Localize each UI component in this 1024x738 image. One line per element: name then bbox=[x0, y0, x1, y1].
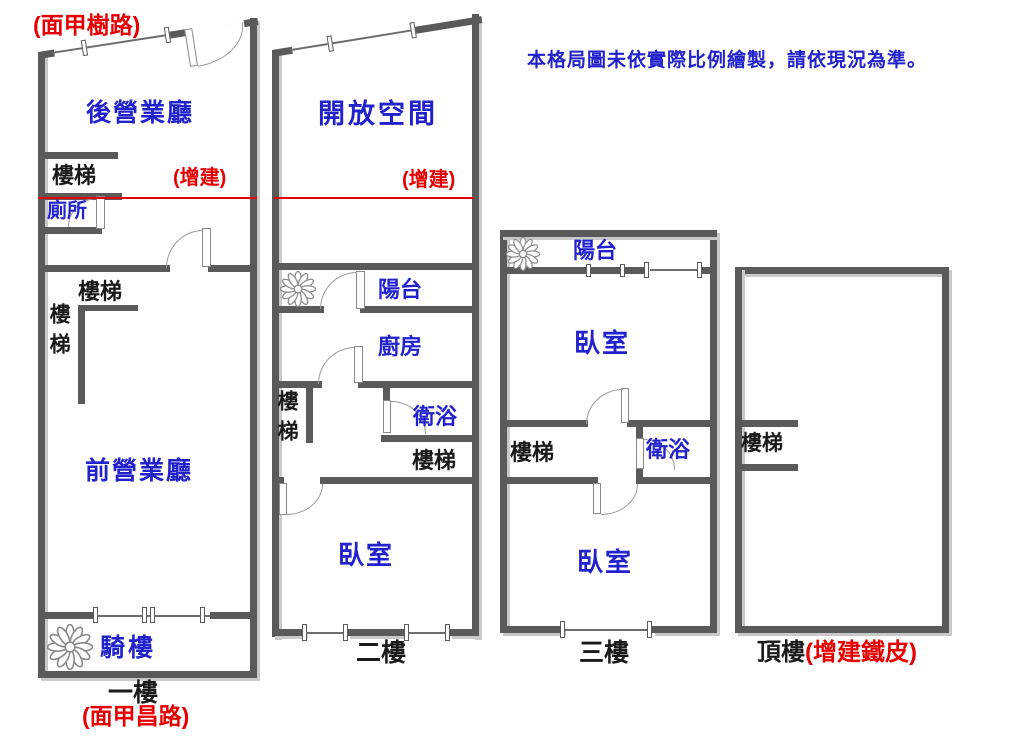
window-line bbox=[290, 29, 415, 51]
wall bbox=[500, 477, 598, 484]
wall bbox=[449, 629, 479, 636]
plant-icon bbox=[506, 237, 540, 271]
wall bbox=[627, 420, 717, 427]
door-leaf bbox=[593, 483, 601, 514]
wall bbox=[250, 18, 257, 678]
window-tick bbox=[326, 35, 333, 52]
wall bbox=[735, 267, 949, 274]
room-label-bedroom-lower-3f: 臥室 bbox=[577, 548, 633, 578]
wall bbox=[38, 227, 102, 234]
addition-line bbox=[274, 197, 474, 199]
wall bbox=[942, 267, 949, 633]
room-label-stair-3f: 樓梯 bbox=[510, 440, 554, 465]
wall bbox=[38, 152, 118, 159]
door-arc bbox=[286, 484, 323, 515]
wall bbox=[360, 306, 479, 313]
wall bbox=[210, 612, 257, 619]
wall bbox=[78, 305, 85, 404]
floor-label-roof: 頂樓(增建鐵皮) bbox=[757, 639, 917, 667]
room-label-bath-3f: 衛浴 bbox=[646, 437, 690, 462]
window-line bbox=[650, 269, 698, 271]
room-label-stair-side-1f: 樓梯 bbox=[46, 303, 70, 363]
room-label-stair-roof: 樓梯 bbox=[741, 432, 783, 456]
door-leaf bbox=[636, 438, 644, 469]
window-tick bbox=[200, 607, 205, 623]
wall bbox=[742, 420, 798, 427]
window-tick bbox=[164, 27, 171, 44]
wall bbox=[710, 230, 717, 633]
addition-label-2f: (增建) bbox=[402, 169, 455, 192]
floor-label-2f: 二樓 bbox=[356, 639, 406, 668]
wall bbox=[272, 306, 324, 313]
window-tick bbox=[697, 262, 702, 278]
wall bbox=[38, 52, 45, 678]
plant-icon bbox=[47, 624, 93, 670]
plant-icon bbox=[280, 271, 316, 307]
window-tick bbox=[560, 621, 565, 638]
wall bbox=[272, 629, 305, 636]
room-label-balcony-2f: 陽台 bbox=[378, 277, 422, 302]
room-label-bath-2f: 衛浴 bbox=[413, 404, 457, 429]
window-tick bbox=[150, 607, 155, 623]
door-arc bbox=[586, 389, 623, 424]
door-arc bbox=[318, 347, 355, 384]
room-label-back-hall: 後營業廳 bbox=[86, 99, 194, 128]
door-leaf bbox=[96, 196, 105, 229]
wall bbox=[742, 464, 798, 471]
wall bbox=[472, 14, 479, 637]
wall bbox=[347, 629, 406, 636]
window-line bbox=[563, 629, 648, 631]
room-label-balcony-3f: 陽台 bbox=[573, 238, 617, 263]
window-tick bbox=[644, 262, 649, 278]
wall bbox=[208, 265, 257, 272]
floor-label-roof-text: 頂樓 bbox=[757, 639, 805, 666]
wall bbox=[272, 50, 279, 637]
wall bbox=[500, 230, 717, 237]
window-tick bbox=[93, 607, 98, 623]
window-line bbox=[305, 632, 345, 634]
room-label-front-hall: 前營業廳 bbox=[85, 457, 193, 486]
wall bbox=[272, 381, 322, 388]
window-line bbox=[406, 632, 447, 634]
wall bbox=[38, 265, 170, 272]
window-tick bbox=[620, 264, 625, 277]
wall bbox=[500, 420, 588, 427]
room-label-stair-side-2f: 樓梯 bbox=[274, 390, 298, 450]
door-leaf bbox=[354, 346, 363, 383]
addition-label-1f: (增建) bbox=[173, 167, 226, 190]
wall bbox=[320, 477, 479, 484]
floor-label-roof-note: (增建鐵皮) bbox=[805, 639, 917, 666]
room-label-kitchen: 廚房 bbox=[378, 334, 422, 359]
street-label-top: (面甲樹路) bbox=[33, 12, 140, 38]
wall bbox=[735, 626, 949, 633]
door-leaf bbox=[383, 400, 391, 433]
room-label-bedroom-2f: 臥室 bbox=[338, 541, 394, 571]
floor-label-3f: 三樓 bbox=[579, 639, 629, 668]
wall bbox=[38, 671, 257, 678]
room-label-bedroom-upper-3f: 臥室 bbox=[574, 329, 630, 359]
window-tick bbox=[343, 624, 348, 641]
door-arc bbox=[166, 230, 203, 268]
wall bbox=[636, 477, 717, 484]
wall bbox=[358, 381, 479, 388]
wall bbox=[38, 612, 96, 619]
door-arc bbox=[192, 22, 248, 66]
floor-plan-diagram: 本格局圖未依實際比例繪製，請依現況為準。 (面甲樹路) 後營業廳 樓梯 (增建)… bbox=[0, 0, 1024, 738]
room-label-open-space: 開放空間 bbox=[318, 99, 438, 130]
door-leaf bbox=[202, 228, 211, 267]
wall bbox=[652, 626, 717, 633]
window-tick bbox=[81, 40, 88, 57]
wall bbox=[381, 435, 479, 442]
room-label-stair-mid-1f: 樓梯 bbox=[78, 279, 122, 304]
street-label-bottom: (面甲昌路) bbox=[82, 703, 189, 729]
window-tick bbox=[445, 624, 450, 641]
wall bbox=[272, 16, 482, 57]
window-tick bbox=[142, 607, 147, 623]
wall bbox=[306, 388, 313, 443]
addition-line bbox=[38, 197, 257, 199]
door-leaf bbox=[356, 271, 365, 309]
window-tick bbox=[647, 621, 652, 638]
window-tick bbox=[302, 624, 307, 641]
wall bbox=[500, 230, 507, 633]
window-tick bbox=[586, 264, 591, 277]
room-label-arcade: 騎樓 bbox=[100, 634, 156, 663]
window-tick bbox=[409, 22, 416, 39]
disclaimer-text: 本格局圖未依實際比例繪製，請依現況為準。 bbox=[527, 50, 927, 72]
wall bbox=[500, 626, 563, 633]
door-arc bbox=[601, 484, 638, 515]
room-label-toilet: 廁所 bbox=[47, 200, 87, 223]
room-label-stair-top-1f: 樓梯 bbox=[52, 163, 96, 188]
room-label-stair-2f: 樓梯 bbox=[412, 448, 456, 473]
door-arc bbox=[320, 272, 357, 309]
wall bbox=[272, 263, 479, 270]
wall bbox=[78, 305, 138, 311]
wall bbox=[702, 267, 717, 274]
